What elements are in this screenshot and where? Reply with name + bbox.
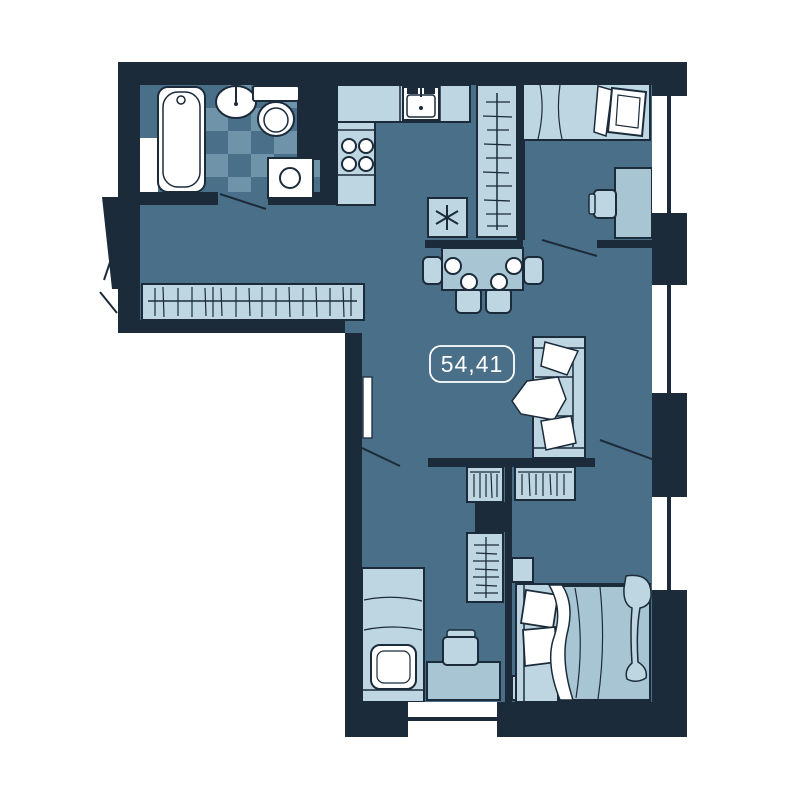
washing-machine (268, 158, 313, 198)
desk-chair (589, 190, 616, 218)
bedroom-left-door-opening (362, 458, 428, 467)
wardrobe-front (515, 467, 575, 500)
window-living (652, 285, 687, 393)
single-bed-top (523, 84, 650, 140)
bedroom-right-door-opening (595, 458, 652, 467)
entry-recess (102, 197, 140, 289)
area-label: 54,41 (430, 346, 514, 382)
window-top-right (652, 96, 687, 213)
bathroom-door-opening (218, 192, 268, 205)
bathtub (158, 87, 205, 192)
sofa-pillow-bottom (541, 416, 576, 450)
washbasin (216, 85, 256, 118)
area-value: 54,41 (441, 351, 504, 377)
dining-chair-bottom-1 (456, 288, 481, 313)
desk (615, 168, 652, 238)
pillow-top (521, 590, 558, 628)
nightstand-top (512, 558, 533, 582)
kitchen-sink (403, 82, 439, 120)
bathroom-niche (140, 138, 158, 192)
tall-wardrobe (477, 85, 517, 237)
window-bedroom-right (652, 497, 687, 590)
entry-door-swing-2 (100, 292, 117, 313)
window-bottom (408, 702, 497, 737)
floor-plan-canvas: 54,41 (0, 0, 800, 800)
wardrobe-side (467, 533, 503, 602)
floor-plan: 54,41 (0, 0, 800, 800)
desk (427, 662, 500, 700)
dining-chair-right (524, 257, 543, 284)
dining-chair-bottom-2 (486, 288, 511, 313)
toilet (253, 86, 299, 136)
hall-wardrobe (142, 284, 364, 320)
dining-chair-left (423, 257, 442, 284)
desk-chair (443, 630, 478, 665)
refrigerator (428, 198, 467, 237)
single-bed-left (362, 568, 424, 702)
wardrobe-front (467, 467, 503, 502)
shaft (475, 502, 505, 532)
bedroom-left-door-leaf (363, 377, 372, 438)
pillow (608, 88, 646, 136)
bathroom-shaft (297, 85, 320, 160)
